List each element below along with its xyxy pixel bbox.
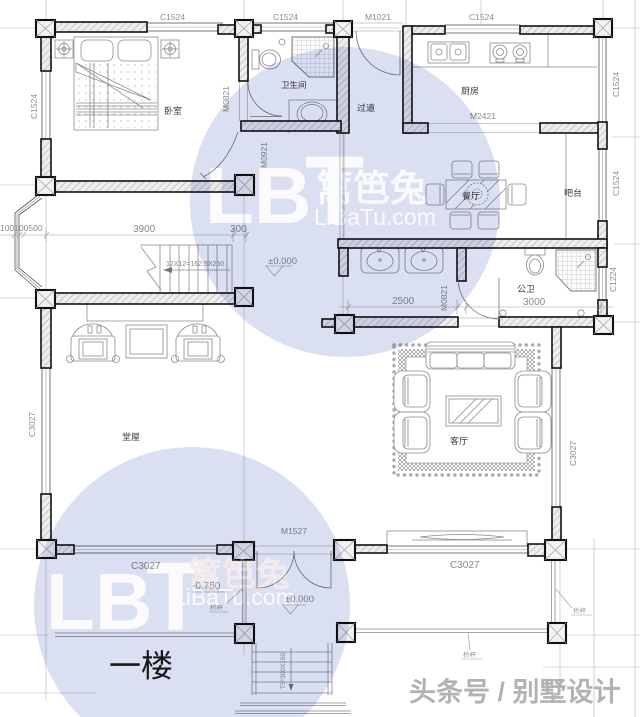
svg-text:C3027: C3027 bbox=[568, 441, 578, 466]
svg-text:3000: 3000 bbox=[523, 297, 546, 308]
svg-text:公卫: 公卫 bbox=[517, 284, 535, 294]
svg-text:头条号 / 别墅设计: 头条号 / 别墅设计 bbox=[409, 677, 621, 707]
svg-text:栏杆: 栏杆 bbox=[463, 651, 477, 659]
svg-text:C1524: C1524 bbox=[611, 72, 621, 97]
svg-text:100100500: 100100500 bbox=[0, 223, 43, 233]
svg-text:C1524: C1524 bbox=[611, 171, 621, 196]
svg-text:堂屋: 堂屋 bbox=[122, 432, 140, 442]
svg-text:厨房: 厨房 bbox=[461, 86, 479, 96]
svg-text:M1021: M1021 bbox=[365, 12, 391, 22]
svg-text:C1524: C1524 bbox=[160, 12, 185, 22]
svg-text:C1524: C1524 bbox=[469, 12, 494, 22]
svg-text:吧台: 吧台 bbox=[564, 188, 582, 198]
svg-text:篱笆兔: 篱笆兔 bbox=[188, 556, 290, 594]
svg-text:C3027: C3027 bbox=[27, 412, 37, 437]
svg-text:C1224: C1224 bbox=[608, 267, 618, 292]
svg-text:客厅: 客厅 bbox=[450, 436, 468, 446]
svg-text:C3027: C3027 bbox=[450, 560, 480, 571]
svg-text:C1524: C1524 bbox=[29, 94, 39, 119]
svg-text:卧室: 卧室 bbox=[164, 106, 182, 116]
svg-text:3900: 3900 bbox=[133, 224, 156, 235]
svg-text:栏杆: 栏杆 bbox=[573, 607, 587, 615]
svg-text:C1524: C1524 bbox=[273, 12, 298, 22]
